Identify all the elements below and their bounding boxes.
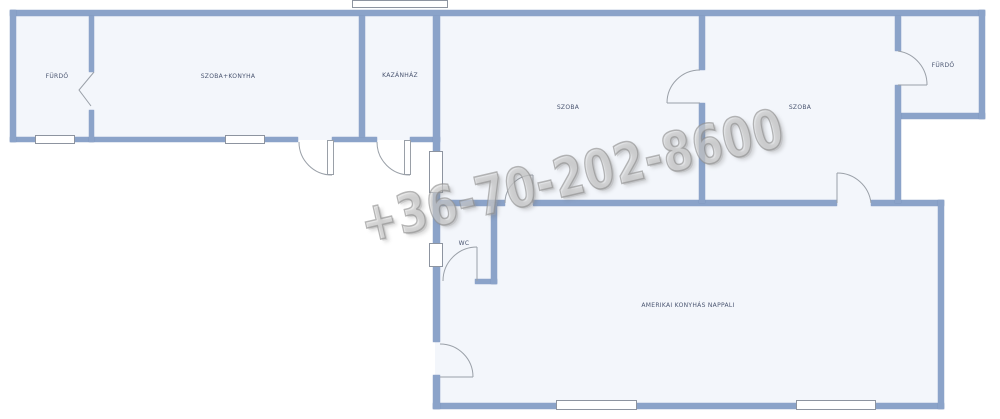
floor-plan: FÜRDŐ SZOBA+KONYHA KAZÁNHÁZ SZOBA SZOBA …: [0, 0, 1000, 419]
wall-spine-c: [433, 266, 440, 342]
wall-furdo-left-divider-a: [89, 16, 94, 72]
wall-kazanhaz-divider: [359, 16, 365, 137]
wall-furdo-right-divider-b: [895, 85, 901, 203]
room-label-furdo-left: FÜRDŐ: [46, 74, 69, 80]
room-label-kazanhaz: KAZÁNHÁZ: [382, 73, 418, 79]
wall-living-right: [938, 200, 944, 409]
wall-spine-a: [433, 16, 440, 152]
room-label-nappali: AMERIKAI KONYHÁS NAPPALI: [641, 303, 734, 309]
room-label-wc: WC: [459, 241, 470, 247]
window-top-kazanhaz: [352, 0, 448, 8]
wall-spine-d: [433, 375, 440, 409]
window-living-south-1: [556, 400, 637, 410]
room-label-szoba-2: SZOBA: [789, 105, 811, 111]
wall-living-top-c: [871, 200, 944, 206]
room-label-szoba-konyha: SZOBA+KONYHA: [201, 74, 256, 80]
window-living-south-2: [796, 400, 876, 410]
room-label-szoba-1: SZOBA: [557, 105, 579, 111]
door-panel-szoba-konyha-entry: [327, 140, 334, 175]
room-label-furdo-right: FÜRDŐ: [932, 63, 955, 69]
window-wc-west: [429, 243, 443, 267]
door-panel-kazanhaz-entry: [404, 140, 411, 175]
wall-furdo-right-divider-a: [895, 16, 901, 51]
wall-right-outer-top: [979, 10, 985, 119]
wall-left-outer: [10, 10, 16, 142]
wall-furdo-left-divider-b: [89, 110, 94, 142]
wall-leftbldg-bottom-b: [332, 137, 377, 142]
window-szoba-konyha: [225, 135, 265, 144]
wall-furdo-right-bottom: [897, 113, 985, 119]
wall-szoba-divider-a: [699, 16, 705, 70]
window-furdo-left: [35, 135, 75, 144]
wall-top: [10, 10, 985, 16]
